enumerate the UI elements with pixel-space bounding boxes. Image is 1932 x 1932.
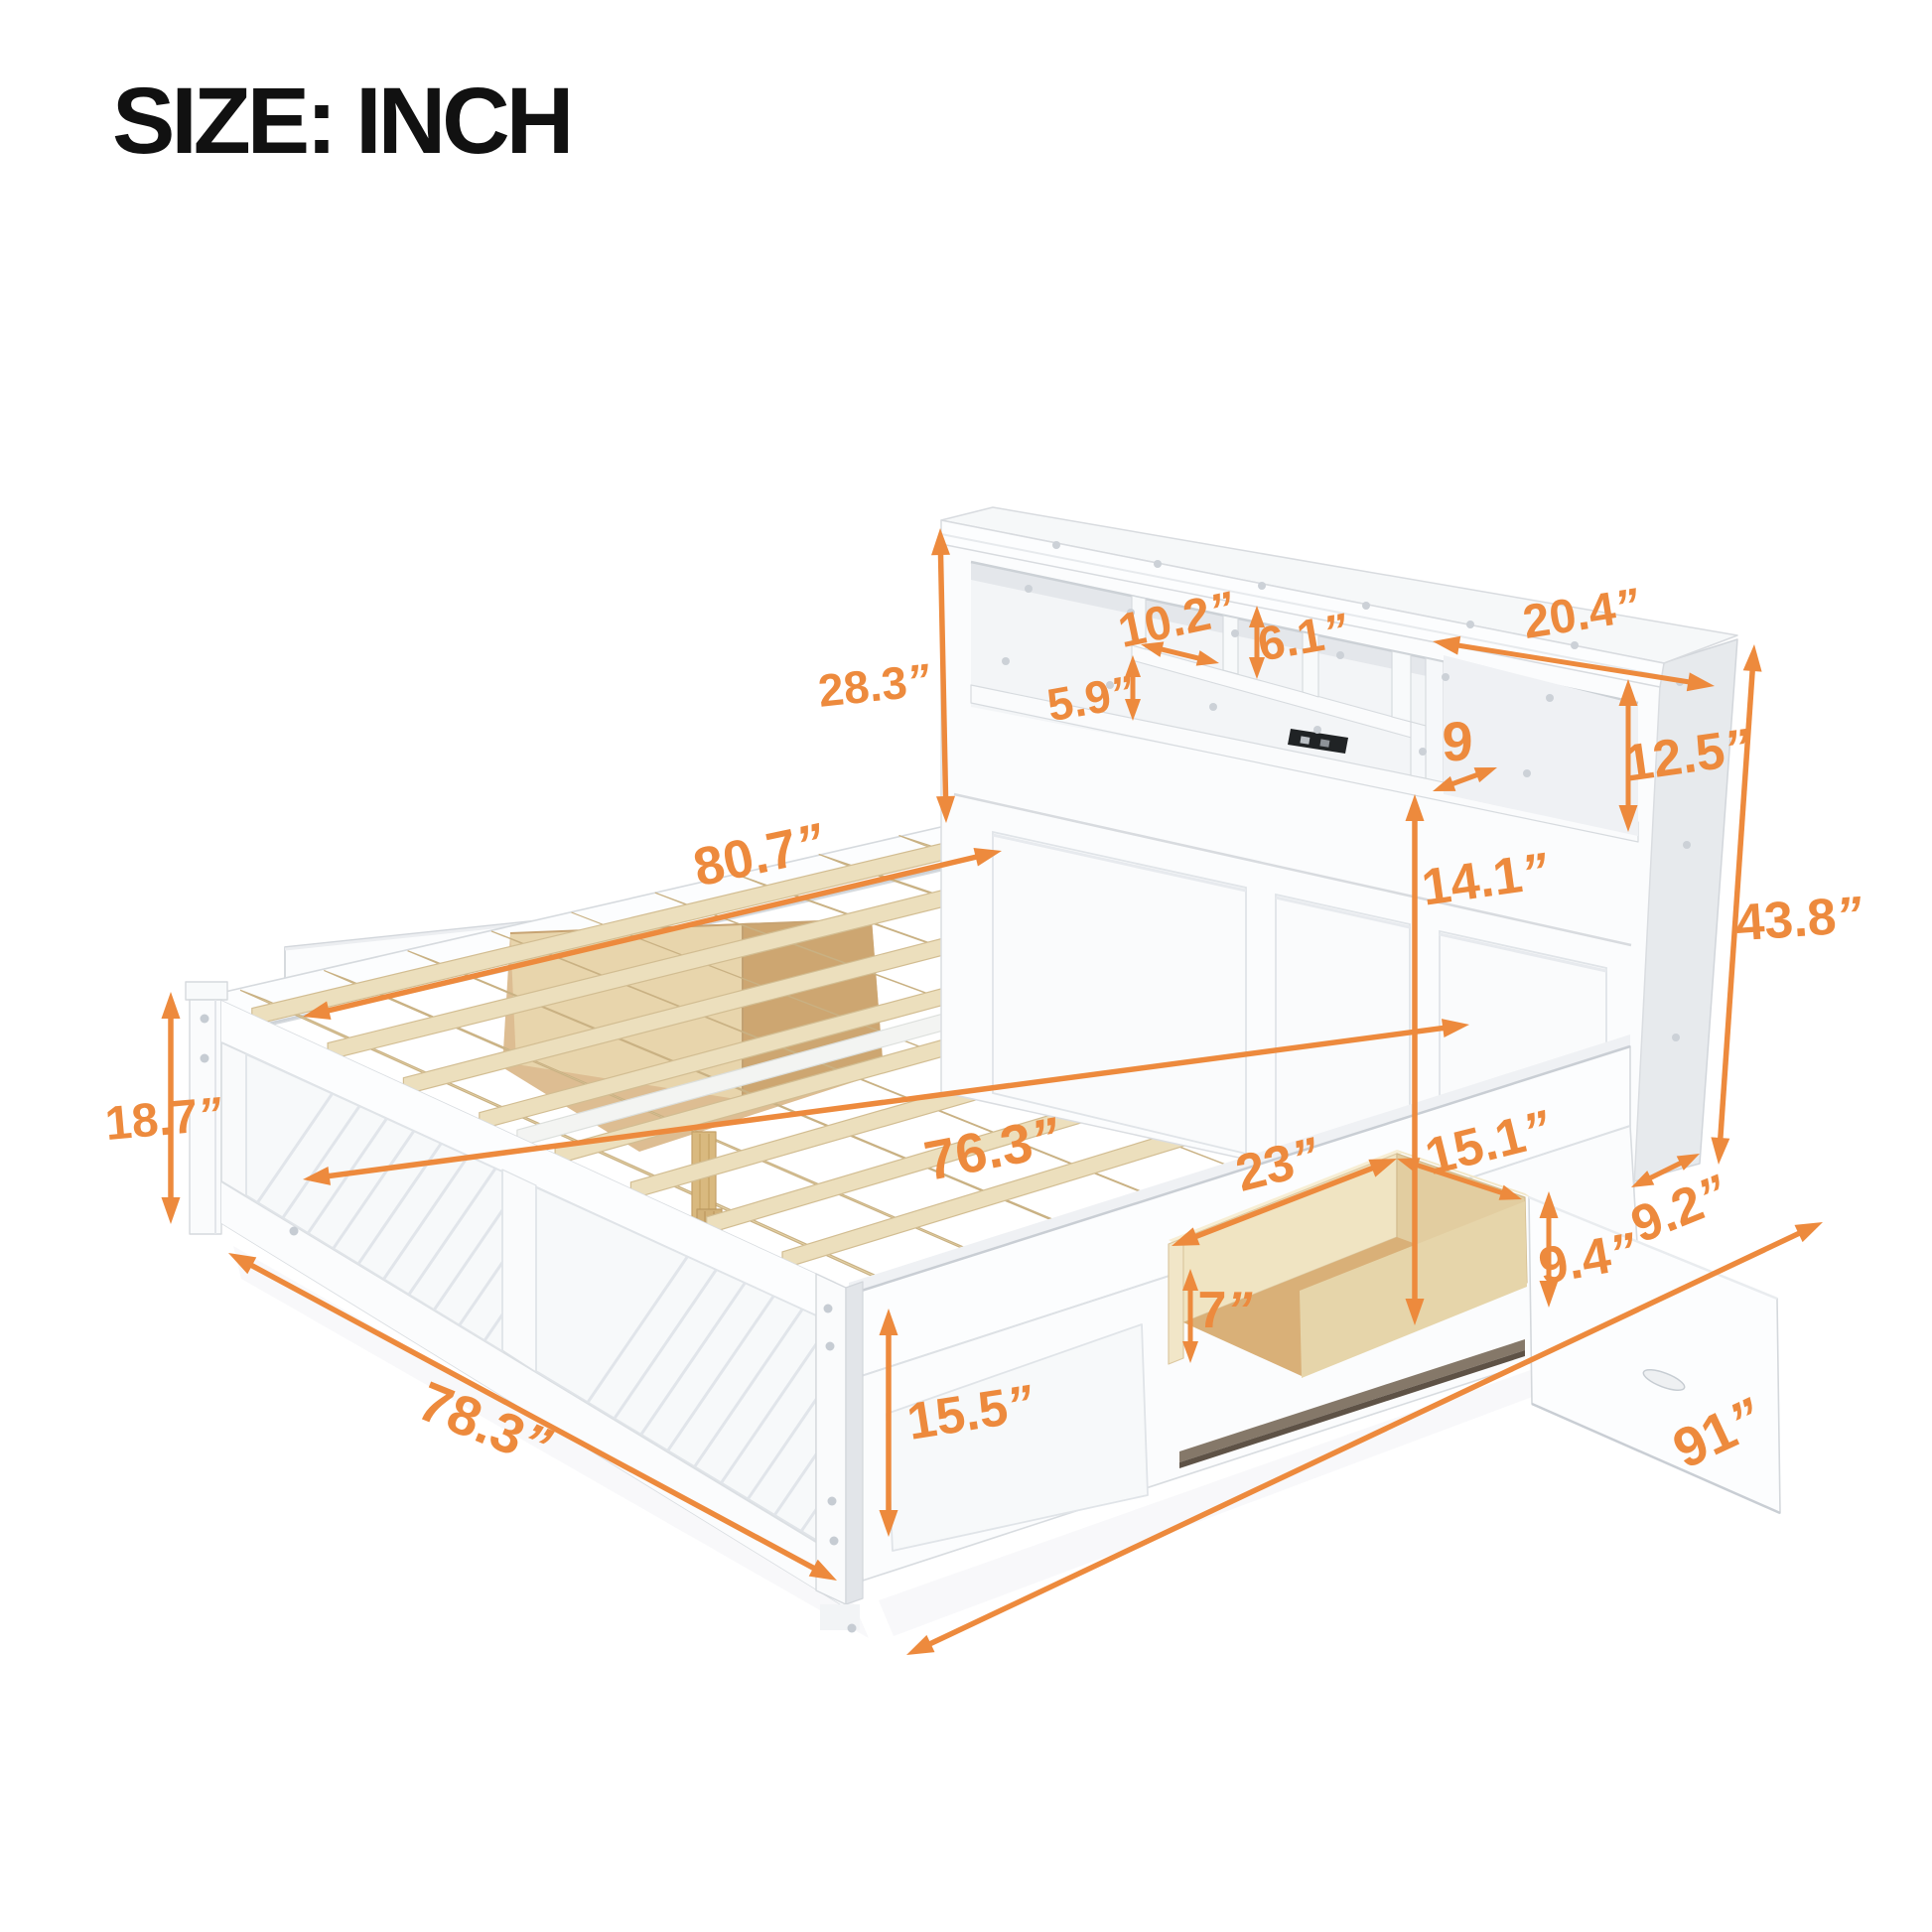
svg-text:7”: 7” bbox=[1198, 1282, 1253, 1339]
svg-text:9: 9 bbox=[1442, 710, 1472, 772]
svg-text:43.8”: 43.8” bbox=[1733, 887, 1863, 953]
svg-text:18.7”: 18.7” bbox=[103, 1088, 224, 1151]
svg-text:SIZE: INCH: SIZE: INCH bbox=[112, 69, 570, 174]
